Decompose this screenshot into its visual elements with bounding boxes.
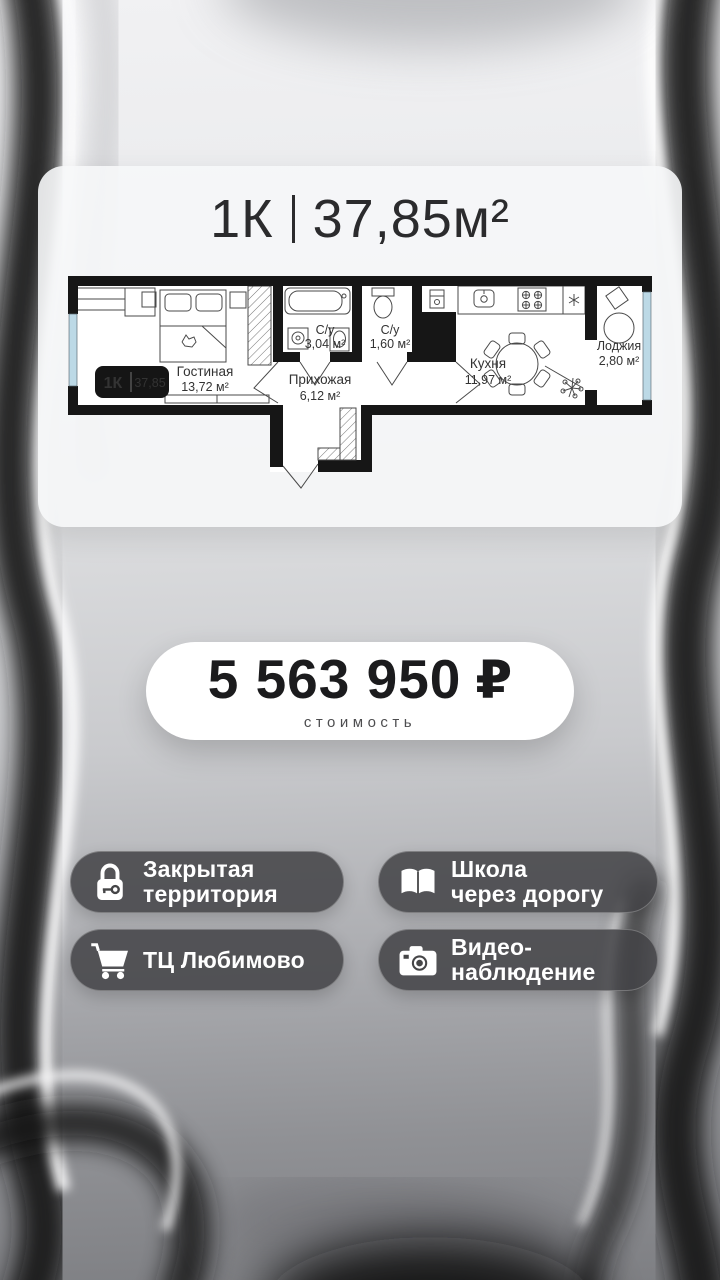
- lock-icon: [87, 861, 133, 903]
- feature-label: ТЦ Любимово: [143, 948, 305, 973]
- feature-closed-territory: Закрытая территория: [70, 851, 344, 913]
- vent-shaft-block: [422, 312, 456, 352]
- price-row: 5 563 950 ₽: [208, 652, 513, 707]
- plan-badge-area: 37,85: [134, 376, 165, 390]
- ruble-sign: ₽: [475, 654, 512, 707]
- open-book-icon: [395, 864, 441, 900]
- camera-icon: [395, 943, 441, 977]
- feature-line: Закрытая: [143, 857, 278, 882]
- room-bath2-name: С/у: [381, 323, 401, 337]
- feature-school: Школа через дорогу: [378, 851, 658, 913]
- wardrobe: [248, 286, 271, 365]
- feature-pills: Закрытая территория Школа через дорогу: [70, 851, 658, 991]
- room-loggia-name: Лоджия: [597, 339, 641, 353]
- feature-line: Школа: [451, 857, 603, 882]
- story-card: 1К 37,85м²: [0, 0, 720, 1280]
- title-rooms: 1К: [210, 192, 274, 246]
- room-livingroom-name: Гостиная: [177, 364, 234, 379]
- floor-plan: 1К 37,85 Гостиная 13,72 м² С/у 3,04 м² С…: [68, 276, 652, 491]
- plan-badge: 1К 37,85: [95, 366, 169, 398]
- feature-cctv: Видео- наблюдение: [378, 929, 658, 991]
- feature-label: Видео- наблюдение: [451, 935, 595, 985]
- feature-label: Школа через дорогу: [451, 857, 603, 907]
- room-kitchen-name: Кухня: [470, 356, 506, 371]
- price-pill: 5 563 950 ₽ стоимость: [146, 642, 574, 740]
- title-divider: [292, 195, 295, 243]
- room-bath1-name: С/у: [316, 323, 336, 337]
- plan-panel: 1К 37,85м²: [38, 166, 682, 527]
- room-hall-name: Прихожая: [289, 372, 352, 387]
- apartment-title: 1К 37,85м²: [38, 192, 682, 246]
- price-label: стоимость: [304, 714, 416, 731]
- feature-line: Видео-: [451, 935, 595, 960]
- room-loggia-area: 2,80 м²: [599, 354, 640, 368]
- room-livingroom-area: 13,72 м²: [181, 380, 229, 394]
- room-hall-area: 6,12 м²: [300, 389, 341, 403]
- feature-line: наблюдение: [451, 960, 595, 985]
- title-area: 37,85м²: [313, 192, 510, 246]
- shopping-cart-icon: [87, 941, 133, 980]
- room-kitchen-area: 11,97 м²: [465, 373, 512, 387]
- feature-line: через дорогу: [451, 882, 603, 907]
- feature-mall: ТЦ Любимово: [70, 929, 344, 991]
- price-amount: 5 563 950: [208, 652, 462, 707]
- feature-label: Закрытая территория: [143, 857, 278, 907]
- feature-line: территория: [143, 882, 278, 907]
- plan-badge-rooms: 1К: [104, 375, 123, 392]
- feature-line: ТЦ Любимово: [143, 948, 305, 973]
- room-bath1-area: 3,04 м²: [305, 337, 346, 351]
- room-bath2-area: 1,60 м²: [370, 337, 411, 351]
